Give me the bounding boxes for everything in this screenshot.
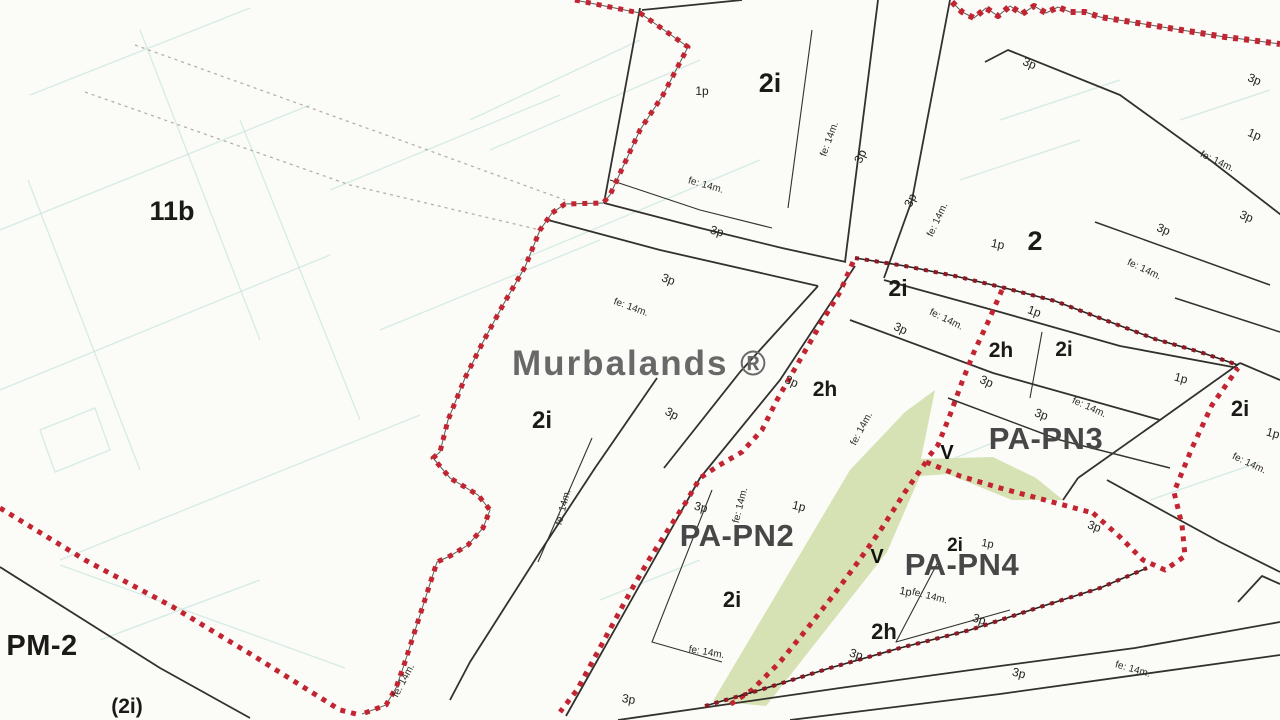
zone-code-label: 2h	[871, 619, 897, 644]
zoning-map-screenshot: 11b1p2i3pfe: 14m.fe: 14m.3p3pfe: 14m.3p3…	[0, 0, 1280, 720]
frontage-label: 1p	[980, 537, 994, 551]
zone-code-label: 2i	[532, 407, 552, 434]
sector-label: PM-2	[6, 630, 77, 662]
zone-code-label: (2i)	[111, 695, 143, 718]
green-road-label: V	[940, 442, 954, 464]
zone-code-label: 2i	[723, 587, 741, 612]
zone-code-label: 2i	[1055, 338, 1073, 361]
zone-code-label: 2i	[888, 275, 907, 301]
zone-code-label: 2i	[947, 535, 963, 556]
zone-code-label: 2	[1027, 226, 1042, 256]
zone-code-label: 11b	[149, 196, 194, 226]
sector-label: PA-PN3	[989, 421, 1103, 456]
zone-code-label: 2h	[813, 378, 838, 401]
zone-code-label: 2h	[989, 339, 1014, 362]
watermark: Murbalands ®	[512, 344, 768, 384]
frontage-label: 3p	[621, 691, 637, 707]
zone-code-label: 2i	[759, 68, 782, 98]
zone-code-label: 2i	[1231, 396, 1249, 421]
green-road-label: V	[870, 546, 884, 568]
frontage-label: 1p	[695, 84, 709, 98]
